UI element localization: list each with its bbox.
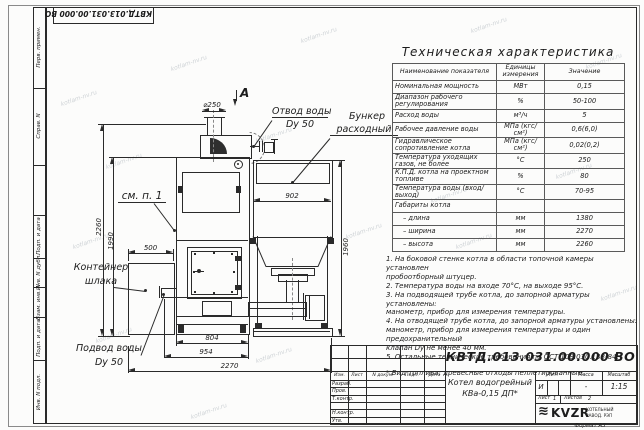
dim-1960: 1960 bbox=[342, 232, 350, 262]
note-line: 3. На подводящей трубе котла, до запорно… bbox=[386, 291, 638, 309]
role-nkontr: Н.контр. bbox=[332, 410, 354, 416]
table-row: Температура воды (вход/выход)°С70-95 bbox=[393, 184, 625, 200]
table-row: – высотамм2260 bbox=[393, 239, 625, 252]
col-header: Значение bbox=[545, 64, 625, 81]
lit-header: Лит. bbox=[535, 373, 570, 378]
table-row: Диапазон рабочего регулирования%50-100 bbox=[393, 94, 625, 110]
frame-column-label: Взам. инв. N bbox=[36, 284, 42, 320]
note-line: 4. На отводящей трубе котла, до запорной… bbox=[386, 317, 638, 326]
product-name-2: КВа-0,15 ДП* bbox=[445, 389, 535, 398]
dim-500: 500 bbox=[128, 244, 173, 252]
callout-see-note-1: см. п. 1 bbox=[118, 190, 166, 203]
role-razrab: Разраб. bbox=[332, 381, 352, 387]
spec-table-title: Техническая характеристика bbox=[392, 45, 624, 59]
note-line: 2. Температура воды на входе 70°С, на вы… bbox=[386, 282, 638, 291]
col-header: Единицы измерения bbox=[497, 64, 545, 81]
table-row: К.П.Д. котла на проектном топливе%80 bbox=[393, 169, 625, 185]
table-row: Расход водым³/ч5 bbox=[393, 109, 625, 122]
col-docum: N докум. bbox=[366, 373, 400, 378]
kvzr-logo-icon: ≋ bbox=[538, 404, 549, 419]
kvzr-logo-text: KVZR bbox=[551, 406, 590, 420]
top-stamp-number: КВТД.013.031.00.000 ВО bbox=[53, 9, 152, 18]
doc-number: КВТД.013.031.00.000 ВО bbox=[445, 349, 636, 364]
callout-bunker: Бункер bbox=[336, 111, 398, 122]
mass-value: - bbox=[570, 383, 602, 391]
scale-value: 1:15 bbox=[602, 382, 636, 391]
spec-table: Наименование показателя Единицы измерени… bbox=[392, 63, 625, 252]
callout-podvod-vody: Подвод воды bbox=[74, 343, 144, 354]
view-marker-letter: А bbox=[240, 86, 249, 100]
table-row: Наименование показателя Единицы измерени… bbox=[393, 64, 625, 81]
dim-954: 954 bbox=[164, 348, 248, 356]
dim-2270: 2270 bbox=[128, 362, 331, 370]
frame-column-label: Подп. и дата bbox=[36, 319, 42, 356]
table-row: Рабочее давление водыМПа (кгс/см²)0,6(6,… bbox=[393, 122, 625, 138]
sheet-value: 1 bbox=[553, 396, 556, 402]
company-name: КОТЕЛЬНЫЙ bbox=[586, 407, 613, 412]
callout-otvod-dy50: Dy 50 bbox=[272, 119, 328, 130]
scale-header: Масштаб bbox=[602, 373, 636, 378]
drawing-sheet: kotlam-nv.ru kotlam-nv.ru kotlam-nv.ru k… bbox=[0, 0, 644, 430]
sheets-label: Листов bbox=[564, 396, 582, 401]
table-row: Габариты котла bbox=[393, 200, 625, 213]
callout-slag-container: Контейнер bbox=[70, 262, 132, 273]
dim-2260: 2260 bbox=[95, 212, 103, 242]
lit-value: И bbox=[535, 383, 547, 391]
note-line: 1. На боковой стенке котла в области топ… bbox=[386, 255, 638, 273]
dim-804: 804 bbox=[176, 334, 248, 342]
role-prov: Пров. bbox=[332, 388, 347, 394]
note-line: пробоотборный штуцер. bbox=[386, 273, 638, 282]
note-line: манометр, прибор для измерения температу… bbox=[386, 308, 638, 317]
table-row: Температура уходящих газов, не более°С25… bbox=[393, 153, 625, 169]
frame-column-label: Подп. и дата bbox=[36, 217, 42, 254]
role-utv: Утв. bbox=[332, 418, 343, 424]
table-row: Номинальная мощностьМВт0,15 bbox=[393, 81, 625, 94]
callout-slag-container-2: шлака bbox=[70, 276, 132, 287]
frame-column-label: Инв. N подл. bbox=[36, 374, 42, 410]
sheets-value: 2 bbox=[588, 396, 591, 402]
col-izm: Изм. bbox=[331, 373, 348, 378]
callout-podvod-dy50: Dy 50 bbox=[74, 357, 144, 368]
company-name-2: ЗАВОД. РЭП bbox=[586, 413, 612, 418]
callout-otvod-vody: Отвод воды bbox=[272, 106, 328, 118]
callout-bunker-rashodny: расходный bbox=[330, 124, 398, 136]
col-list: Лист bbox=[348, 373, 366, 378]
col-podp: Подп. bbox=[400, 373, 424, 378]
role-tkontr: Т.контр. bbox=[332, 396, 354, 402]
sheet-label: Лист bbox=[538, 396, 550, 401]
dim-902: 902 bbox=[253, 192, 331, 200]
col-data: Дата bbox=[424, 373, 445, 378]
table-row: Гидравлическое сопротивление котлаМПа (к… bbox=[393, 138, 625, 154]
dim-1990: 1990 bbox=[107, 226, 115, 256]
dim-dia250: ⌀250 bbox=[194, 101, 230, 109]
frame-column-label: Справ. N bbox=[36, 113, 42, 138]
mass-header: Масса bbox=[570, 373, 602, 378]
col-header: Наименование показателя bbox=[393, 64, 497, 81]
table-row: – длинамм1380 bbox=[393, 213, 625, 226]
table-row: – ширинамм2270 bbox=[393, 226, 625, 239]
product-name: Котел водогрейный bbox=[445, 378, 535, 387]
note-line: манометр, прибор для измерения температу… bbox=[386, 326, 638, 344]
frame-column-label: Перв. примен. bbox=[36, 26, 42, 67]
